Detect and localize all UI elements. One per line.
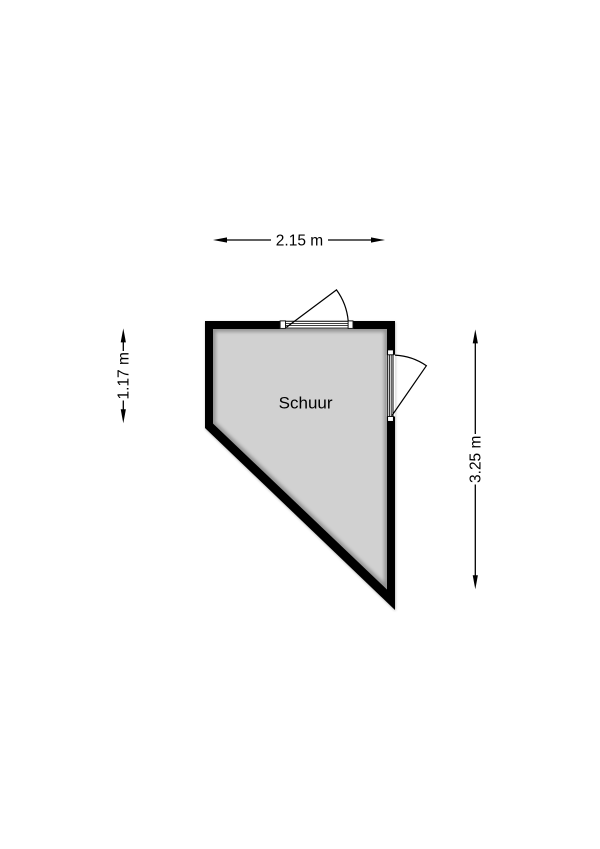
svg-text:3.25 m: 3.25 m (468, 436, 485, 483)
svg-text:Schuur: Schuur (279, 393, 333, 412)
svg-text:1.17 m: 1.17 m (116, 352, 133, 399)
svg-text:2.15 m: 2.15 m (276, 232, 323, 249)
